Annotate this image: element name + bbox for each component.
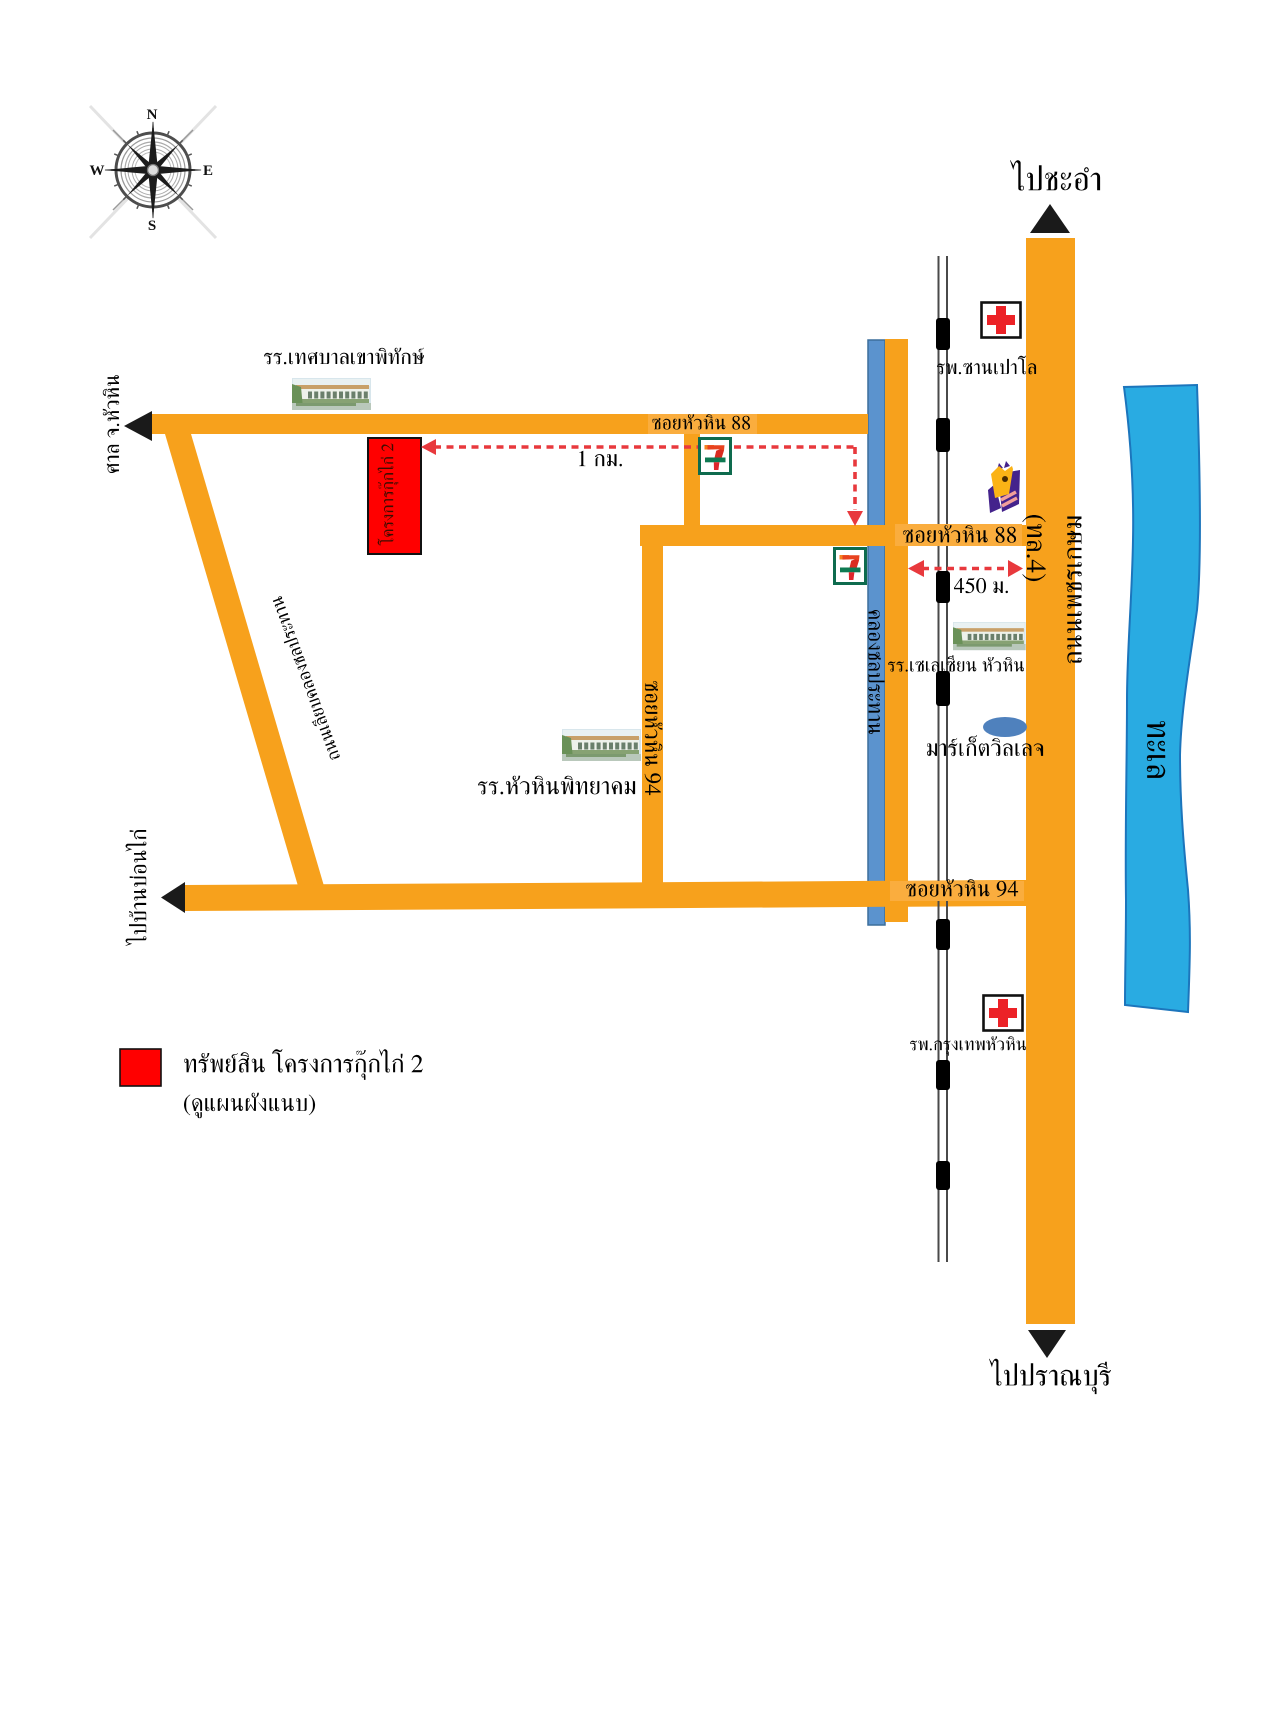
svg-text:E: E [203,163,213,179]
svg-text:S: S [148,218,156,234]
svg-text:W: W [90,163,105,179]
svg-text:N: N [147,107,158,123]
